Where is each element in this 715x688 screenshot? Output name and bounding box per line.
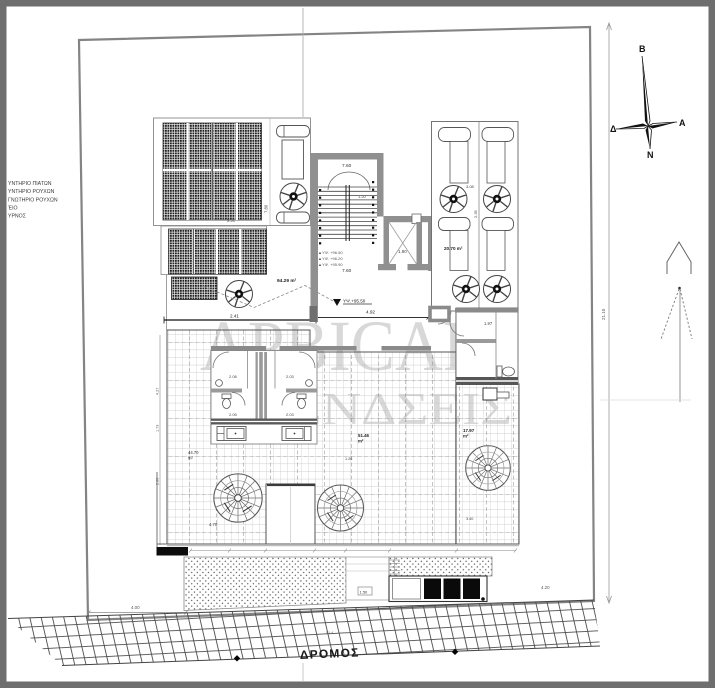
- svg-text:21.10: 21.10: [601, 308, 606, 320]
- svg-text:▲ΥΨ. +96.50: ▲ΥΨ. +96.50: [318, 250, 343, 255]
- svg-text:m²: m²: [463, 434, 469, 439]
- svg-text:A: A: [679, 118, 686, 128]
- svg-text:2.03: 2.03: [286, 374, 295, 379]
- svg-text:51.46: 51.46: [358, 433, 370, 438]
- svg-text:20.70 m²: 20.70 m²: [444, 246, 463, 251]
- svg-text:ΥΝΤΗΡΙΟ ΡΟΥΧΩΝ: ΥΝΤΗΡΙΟ ΡΟΥΧΩΝ: [8, 189, 55, 195]
- svg-text:1.50: 1.50: [360, 590, 369, 595]
- svg-text:7.60: 7.60: [342, 268, 352, 274]
- svg-text:44.70: 44.70: [188, 450, 199, 455]
- svg-text:▲ΥΨ. +95.90: ▲ΥΨ. +95.90: [318, 262, 343, 267]
- svg-text:4.92: 4.92: [366, 310, 375, 315]
- svg-text:Δ: Δ: [610, 124, 617, 134]
- svg-text:ΈΙΟ: ΈΙΟ: [7, 206, 18, 212]
- svg-text:ΥΝΤΗΡΙΟ ΠΙΑΤΩΝ: ΥΝΤΗΡΙΟ ΠΙΑΤΩΝ: [8, 181, 52, 187]
- svg-text:▲ΥΨ. +96.20: ▲ΥΨ. +96.20: [318, 256, 343, 261]
- svg-text:17.97: 17.97: [463, 428, 475, 433]
- svg-text:2.05: 2.05: [229, 412, 238, 417]
- svg-text:94.29 m²: 94.29 m²: [277, 278, 297, 284]
- svg-text:B: B: [639, 44, 646, 54]
- svg-text:3.40: 3.40: [466, 517, 473, 521]
- svg-text:1.90: 1.90: [398, 249, 407, 254]
- svg-text:m²: m²: [188, 456, 193, 461]
- svg-text:4.20: 4.20: [541, 585, 550, 590]
- svg-text:2.35: 2.35: [473, 209, 478, 218]
- svg-text:ΥΡΝΟΣ: ΥΡΝΟΣ: [8, 214, 26, 220]
- svg-text:ΔΡΟΜΟΣ: ΔΡΟΜΟΣ: [300, 645, 360, 662]
- svg-text:m²: m²: [358, 439, 364, 444]
- svg-text:3.08: 3.08: [466, 184, 475, 189]
- svg-text:ΥΨ.+95.50: ΥΨ.+95.50: [343, 299, 366, 304]
- svg-text:1.26: 1.26: [345, 457, 352, 461]
- svg-text:2.08: 2.08: [229, 374, 238, 379]
- svg-text:7.60: 7.60: [342, 163, 352, 169]
- svg-text:2.03: 2.03: [286, 412, 295, 417]
- svg-text:7.80: 7.80: [264, 204, 269, 213]
- svg-text:2.60: 2.60: [156, 478, 160, 485]
- svg-text:ΓΝΩΤΗΡΙΟ ΡΟΥΧΩΝ: ΓΝΩΤΗΡΙΟ ΡΟΥΧΩΝ: [8, 198, 58, 204]
- svg-text:1.73: 1.73: [156, 425, 160, 432]
- svg-text:4.27: 4.27: [156, 388, 160, 395]
- svg-text:1.20: 1.20: [358, 194, 367, 199]
- svg-text:5.51: 5.51: [227, 217, 236, 223]
- svg-text:4.00: 4.00: [131, 605, 140, 610]
- svg-text:1.97: 1.97: [484, 321, 493, 326]
- svg-text:2.41: 2.41: [230, 314, 239, 319]
- svg-text:N: N: [647, 150, 654, 160]
- svg-text:4.70: 4.70: [209, 522, 218, 527]
